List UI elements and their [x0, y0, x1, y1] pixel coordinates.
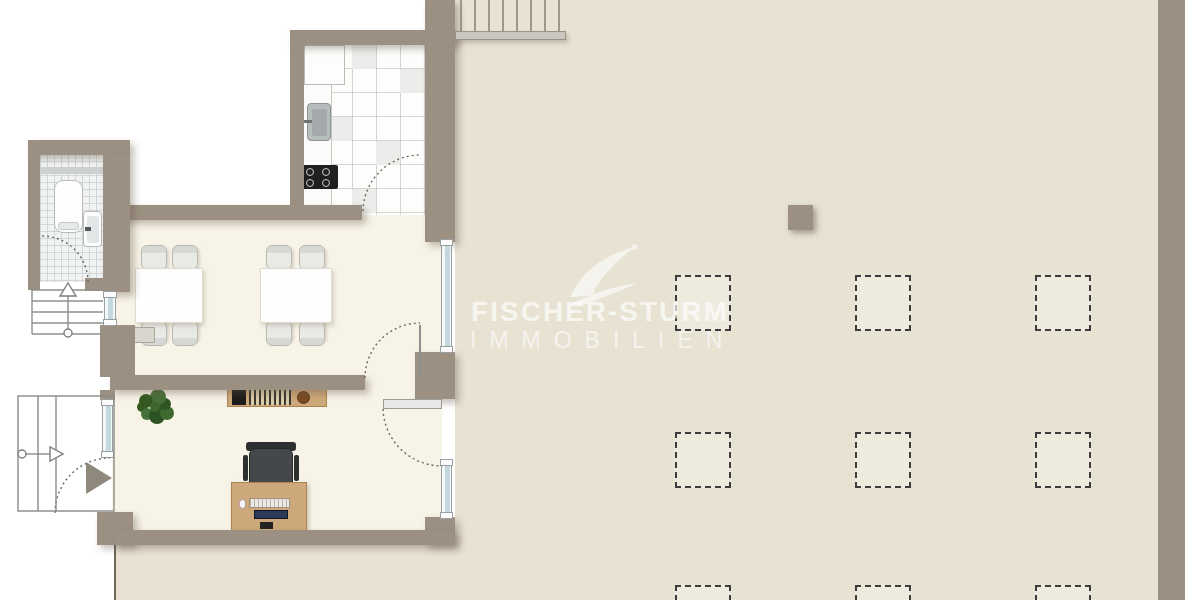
- linework-overlay: [0, 0, 1200, 600]
- stairs-lower: [18, 396, 114, 511]
- door-arc-living-office: [365, 323, 420, 378]
- door-arc-hall: [383, 409, 442, 466]
- floor-plan: FISCHER-STURM IMMOBILIEN: [0, 0, 1200, 600]
- railing-posts: [461, 0, 559, 31]
- door-arc-bathroom: [42, 236, 88, 282]
- stairs-start-dot-icon: [64, 329, 72, 337]
- door-arc-kitchen: [363, 155, 420, 211]
- entrance-door-icon: [86, 462, 112, 494]
- stairs-start-dot-icon: [18, 450, 26, 458]
- door-arc-entrance: [55, 458, 110, 513]
